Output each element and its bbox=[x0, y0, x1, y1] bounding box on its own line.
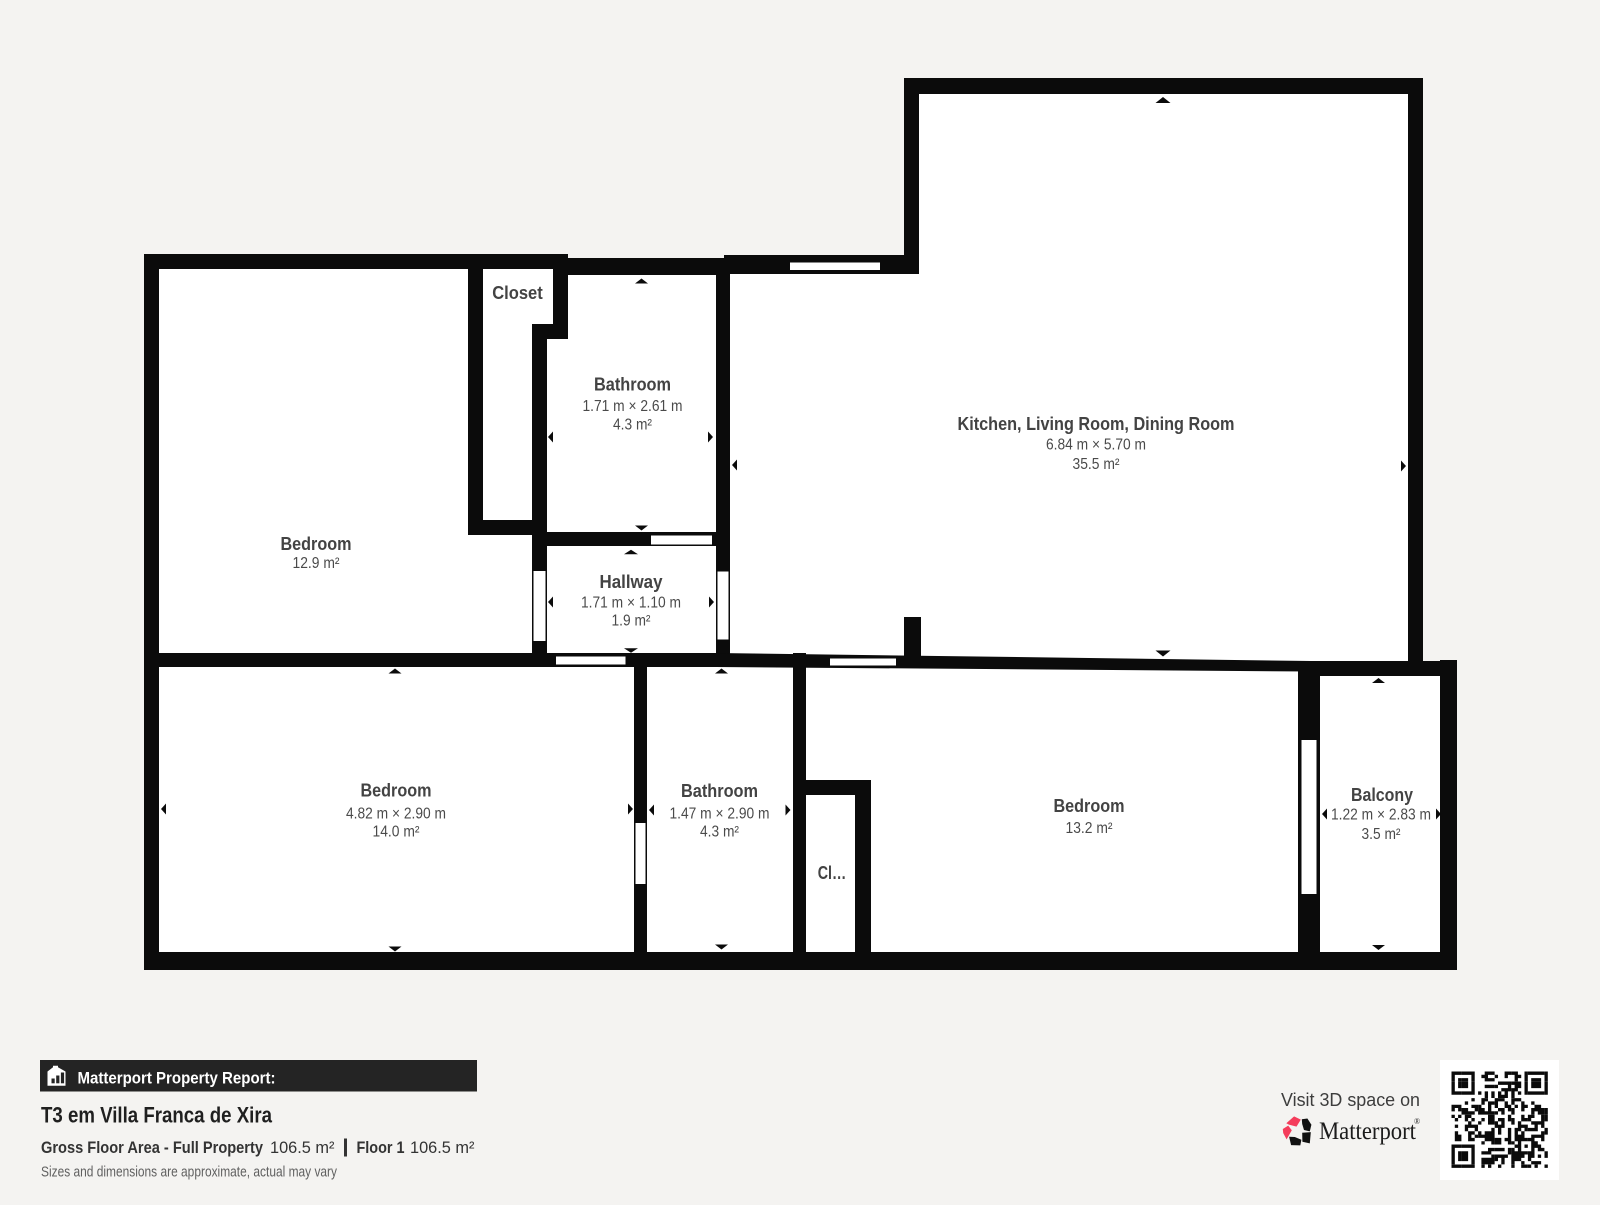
svg-text:Visit 3D space on: Visit 3D space on bbox=[1281, 1090, 1420, 1110]
svg-text:12.9 m²: 12.9 m² bbox=[293, 555, 340, 572]
svg-text:4.3 m²: 4.3 m² bbox=[700, 824, 739, 841]
svg-text:1.22 m × 2.83 m: 1.22 m × 2.83 m bbox=[1331, 807, 1431, 824]
svg-text:Balcony: Balcony bbox=[1351, 784, 1414, 805]
svg-text:106.5 m²: 106.5 m² bbox=[410, 1138, 475, 1157]
svg-text:Kitchen, Living Room, Dining R: Kitchen, Living Room, Dining Room bbox=[958, 413, 1235, 434]
svg-text:®: ® bbox=[1414, 1117, 1420, 1126]
svg-text:6.84 m × 5.70 m: 6.84 m × 5.70 m bbox=[1046, 437, 1146, 454]
svg-text:35.5 m²: 35.5 m² bbox=[1073, 456, 1120, 473]
svg-text:1.71 m × 1.10 m: 1.71 m × 1.10 m bbox=[581, 595, 681, 612]
svg-text:Matterport Property Report:: Matterport Property Report: bbox=[78, 1069, 276, 1088]
svg-text:Bathroom: Bathroom bbox=[681, 780, 758, 801]
svg-text:1.47 m × 2.90 m: 1.47 m × 2.90 m bbox=[670, 806, 770, 823]
svg-text:1.9 m²: 1.9 m² bbox=[612, 613, 651, 630]
svg-text:Bedroom: Bedroom bbox=[1054, 795, 1125, 816]
svg-text:3.5 m²: 3.5 m² bbox=[1362, 826, 1401, 843]
svg-text:106.5 m²: 106.5 m² bbox=[270, 1138, 335, 1157]
svg-text:Closet: Closet bbox=[492, 282, 543, 303]
svg-text:Bedroom: Bedroom bbox=[361, 780, 432, 801]
svg-text:4.3 m²: 4.3 m² bbox=[613, 417, 652, 434]
svg-text:Gross Floor Area - Full Proper: Gross Floor Area - Full Property bbox=[41, 1138, 263, 1157]
svg-text:Bathroom: Bathroom bbox=[594, 374, 671, 395]
svg-text:Hallway: Hallway bbox=[600, 571, 664, 592]
svg-text:1.71 m × 2.61 m: 1.71 m × 2.61 m bbox=[583, 398, 683, 415]
svg-text:Floor 1: Floor 1 bbox=[357, 1138, 405, 1157]
svg-text:14.0 m²: 14.0 m² bbox=[373, 824, 420, 841]
svg-text:13.2 m²: 13.2 m² bbox=[1066, 820, 1113, 837]
svg-text:Sizes and dimensions are appro: Sizes and dimensions are approximate, ac… bbox=[41, 1164, 337, 1181]
svg-text:Matterport: Matterport bbox=[1319, 1118, 1416, 1145]
svg-text:4.82 m × 2.90 m: 4.82 m × 2.90 m bbox=[346, 806, 446, 823]
svg-text:Bedroom: Bedroom bbox=[281, 533, 352, 554]
svg-text:T3 em Villa Franca de Xira: T3 em Villa Franca de Xira bbox=[41, 1103, 273, 1128]
svg-text:Cl…: Cl… bbox=[818, 862, 847, 883]
